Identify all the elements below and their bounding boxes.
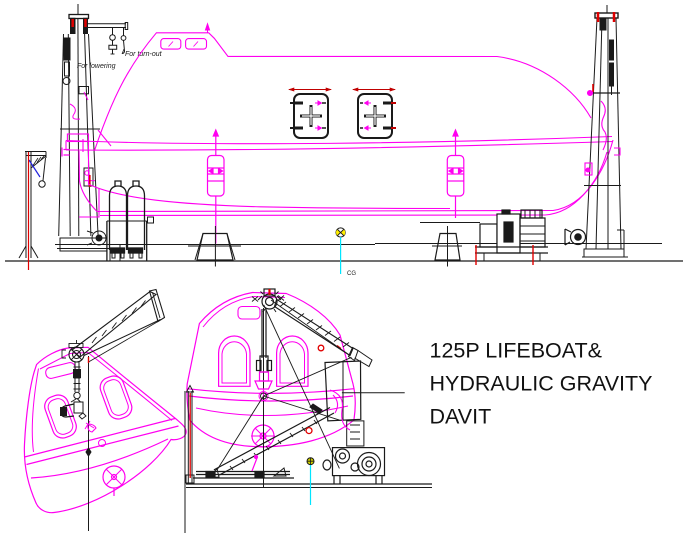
svg-text:DAVIT: DAVIT [430,405,492,429]
svg-text:125P LIFEBOAT&: 125P LIFEBOAT& [430,339,602,363]
svg-text:For turn-out: For turn-out [125,51,163,58]
svg-text:For lowering: For lowering [77,63,116,70]
svg-text:CG: CG [347,271,356,277]
svg-text:HYDRAULIC GRAVITY: HYDRAULIC GRAVITY [430,372,653,396]
